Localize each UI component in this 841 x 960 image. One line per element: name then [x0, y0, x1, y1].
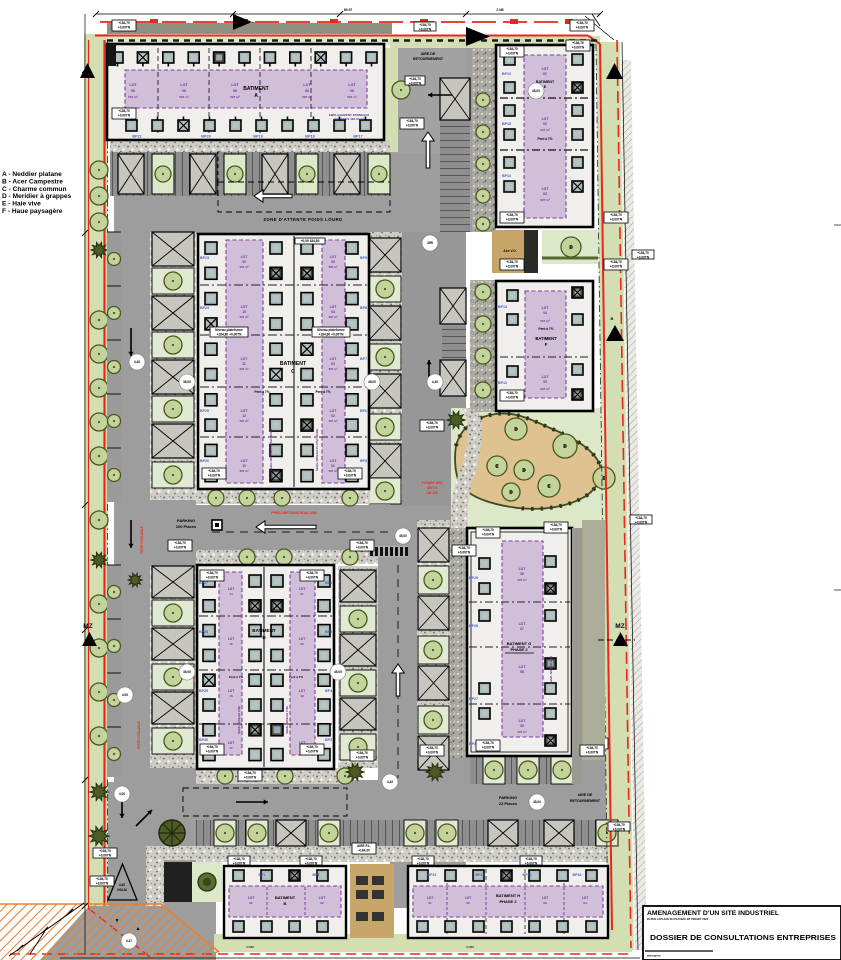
svg-text:BP26: BP26	[200, 459, 209, 463]
svg-text:597 m²: 597 m²	[240, 367, 249, 371]
svg-text:4,40: 4,40	[119, 883, 125, 887]
svg-text:+0,00TN: +0,00TN	[118, 113, 131, 117]
svg-text:+0,00TN: +0,00TN	[206, 749, 219, 753]
svg-text:LOT: LOT	[228, 637, 234, 641]
svg-text:Pent à 7%: Pent à 7%	[254, 390, 269, 394]
svg-text:+0,00TN: +0,00TN	[409, 81, 422, 85]
svg-text:12: 12	[242, 414, 246, 418]
svg-text:03: 03	[543, 901, 547, 905]
svg-text:BP16: BP16	[502, 72, 511, 76]
svg-text:D: D	[514, 427, 518, 433]
svg-text:22 Places: 22 Places	[499, 801, 518, 806]
svg-text:BP25: BP25	[200, 409, 209, 413]
svg-text:+0,00TN: +0,00TN	[99, 853, 112, 857]
svg-text:SEUIL NIVEAU FINI: SEUIL NIVEAU FINI	[549, 656, 553, 684]
svg-text:09: 09	[242, 260, 246, 264]
svg-text:+0,00TN: +0,00TN	[635, 520, 648, 524]
svg-text:597 m²: 597 m²	[329, 265, 338, 269]
svg-text:AIRE DE: AIRE DE	[578, 793, 593, 797]
svg-text:▼: ▼	[115, 918, 120, 924]
svg-text:LOT: LOT	[519, 567, 527, 571]
svg-text:06: 06	[131, 89, 135, 93]
svg-text:+0,00TN: +0,00TN	[233, 861, 246, 865]
svg-text:E - Haie vive: E - Haie vive	[2, 201, 41, 208]
svg-text:02: 02	[543, 122, 547, 126]
svg-text:16: 16	[229, 694, 233, 698]
svg-text:HOLM: HOLM	[117, 888, 127, 892]
svg-text:Pent à 7%: Pent à 7%	[229, 675, 244, 679]
svg-text:B - Acer Campestre: B - Acer Campestre	[2, 178, 63, 185]
svg-text:100 Places: 100 Places	[176, 524, 197, 529]
svg-text:4,00: 4,00	[119, 792, 125, 796]
svg-text:BP6: BP6	[325, 581, 332, 585]
svg-text:4,00: 4,00	[122, 693, 128, 697]
svg-text:09: 09	[520, 724, 524, 728]
svg-text:BP24: BP24	[200, 306, 209, 310]
svg-text:BP28: BP28	[469, 624, 478, 628]
svg-text:PHASE 2: PHASE 2	[510, 647, 528, 652]
svg-text:LOT: LOT	[241, 357, 249, 361]
svg-text:LOT: LOT	[228, 587, 234, 591]
svg-text:BATIMENT G: BATIMENT G	[507, 641, 532, 646]
svg-text:BP33: BP33	[523, 873, 532, 877]
svg-text:SEUIL NIVEAU FINI: SEUIL NIVEAU FINI	[285, 706, 289, 734]
svg-text:+184,80 +0,00TN: +184,80 +0,00TN	[217, 332, 243, 336]
svg-text:D: D	[563, 444, 567, 450]
svg-text:45,00: 45,00	[183, 380, 191, 384]
svg-text:597 m²: 597 m²	[240, 315, 249, 319]
svg-text:BP15: BP15	[502, 122, 511, 126]
svg-text:BP17: BP17	[353, 135, 363, 139]
svg-text:PARKING: PARKING	[177, 518, 195, 523]
svg-text:597 m²: 597 m²	[540, 198, 550, 202]
svg-text:BATIMENT: BATIMENT	[535, 336, 557, 341]
svg-text:+184,80 +0,00TN: +184,80 +0,00TN	[319, 332, 345, 336]
svg-text:+0,00TN: +0,00TN	[550, 527, 563, 531]
svg-text:BP8: BP8	[360, 306, 367, 310]
svg-text:LOT: LOT	[519, 622, 527, 626]
svg-text:LOT: LOT	[299, 587, 305, 591]
svg-text:+0,00TN: +0,00TN	[344, 473, 357, 477]
svg-text:BP31: BP31	[428, 873, 437, 877]
svg-text:04: 04	[543, 311, 547, 315]
svg-text:597 m²: 597 m²	[540, 387, 550, 391]
svg-text:AIRE DE: AIRE DE	[421, 52, 436, 56]
svg-text:BP30: BP30	[199, 738, 208, 742]
svg-text:Pent à 7%: Pent à 7%	[315, 390, 330, 394]
svg-text:+0,00TN: +0,00TN	[417, 861, 430, 865]
svg-text:+0,00TN: +0,00TN	[356, 755, 369, 759]
svg-text:PHASE 2: PHASE 2	[499, 899, 517, 904]
svg-text:45,00: 45,00	[533, 800, 541, 804]
svg-text:+0,00TN: +0,00TN	[306, 749, 319, 753]
svg-text:RETOURNEMENT: RETOURNEMENT	[570, 799, 601, 803]
svg-text:BP29: BP29	[469, 576, 478, 580]
svg-text:11: 11	[242, 362, 246, 366]
svg-text:LOT: LOT	[519, 719, 527, 723]
svg-text:B: B	[611, 316, 614, 321]
svg-text:LOT: LOT	[465, 896, 471, 900]
svg-text:Pent à 7%: Pent à 7%	[538, 327, 553, 331]
svg-text:LOT: LOT	[582, 896, 588, 900]
svg-text:06: 06	[305, 89, 309, 93]
svg-text:05: 05	[543, 380, 547, 384]
svg-text:BP5: BP5	[325, 630, 332, 634]
svg-text:BATIMENT H: BATIMENT H	[496, 893, 520, 898]
svg-text:BP18: BP18	[305, 135, 315, 139]
svg-text:BP23: BP23	[200, 256, 209, 260]
svg-text:69.97: 69.97	[344, 8, 353, 12]
svg-text:BP13: BP13	[498, 305, 507, 309]
svg-text:597 m²: 597 m²	[518, 578, 527, 582]
svg-text:+0,00TN: +0,00TN	[458, 550, 471, 554]
svg-text:LOT: LOT	[228, 689, 234, 693]
svg-text:BP7: BP7	[360, 357, 367, 361]
svg-text:+0,00TN: +0,00TN	[506, 264, 519, 268]
svg-text:SEUIL NIVEAU PLATEFORME: SEUIL NIVEAU PLATEFORME	[269, 429, 273, 471]
svg-text:45,00: 45,00	[334, 670, 342, 674]
svg-text:+0,00TN: +0,00TN	[506, 51, 519, 55]
svg-text:D - Meridier à grappes: D - Meridier à grappes	[2, 193, 72, 200]
svg-text:LOT: LOT	[319, 896, 325, 900]
svg-text:BP1: BP1	[259, 873, 266, 877]
svg-text:LOT: LOT	[299, 637, 305, 641]
svg-text:PISTE CYCLABLE: PISTE CYCLABLE	[140, 526, 144, 553]
svg-text:LOT: LOT	[330, 459, 338, 463]
svg-text:+0,00TN: +0,00TN	[610, 264, 623, 268]
svg-text:597 m²: 597 m²	[329, 469, 338, 473]
svg-text:+0,00 184,80: +0,00 184,80	[301, 239, 320, 243]
svg-text:+0,00TN: +0,00TN	[426, 750, 439, 754]
svg-text:+0,00TN: +0,00TN	[426, 425, 439, 429]
svg-text:07: 07	[520, 627, 524, 631]
svg-text:LOT: LOT	[228, 741, 234, 745]
svg-text:LOT: LOT	[348, 83, 356, 87]
svg-text:ZONE D'ATTENTE POIDS LOURD: ZONE D'ATTENTE POIDS LOURD	[263, 217, 342, 222]
svg-text:Aire V.O.: Aire V.O.	[503, 249, 516, 253]
svg-text:4,40: 4,40	[134, 360, 140, 364]
svg-text:entreprise: entreprise	[647, 954, 661, 958]
svg-text:+0,00TN: +0,00TN	[406, 123, 419, 127]
svg-text:+0,00TN: +0,00TN	[118, 25, 131, 29]
svg-text:Pent à 7%: Pent à 7%	[289, 675, 304, 679]
svg-text:45x7.5: 45x7.5	[427, 486, 437, 490]
svg-text:BP9: BP9	[360, 256, 367, 260]
svg-text:LOT: LOT	[427, 896, 433, 900]
svg-text:BP5: BP5	[360, 459, 367, 463]
svg-text:08: 08	[520, 670, 524, 674]
svg-text:+0,00TN: +0,00TN	[482, 745, 495, 749]
svg-text:01: 01	[428, 901, 432, 905]
svg-text:BP6: BP6	[360, 409, 367, 413]
svg-text:LOT: LOT	[303, 83, 311, 87]
svg-text:+0,00TN: +0,00TN	[174, 545, 187, 549]
svg-text:LOT: LOT	[180, 83, 188, 87]
svg-text:PARKING: PARKING	[499, 795, 517, 800]
svg-text:DOSSIER DE CONSULTATIONS ENTRE: DOSSIER DE CONSULTATIONS ENTREPRISES	[650, 933, 836, 942]
svg-text:LOT: LOT	[542, 306, 550, 310]
svg-text:D: D	[509, 490, 513, 496]
svg-text:PRESCRIPTIONS ROULAGE: PRESCRIPTIONS ROULAGE	[271, 511, 317, 515]
svg-text:01: 01	[249, 901, 253, 905]
svg-text:03: 03	[331, 362, 335, 366]
svg-text:06: 06	[182, 89, 186, 93]
svg-text:597 m²: 597 m²	[329, 315, 338, 319]
svg-text:BP21: BP21	[132, 135, 142, 139]
svg-text:Pent à 7%: Pent à 7%	[537, 137, 552, 141]
svg-text:01: 01	[331, 464, 335, 468]
svg-text:597 m²: 597 m²	[540, 128, 550, 132]
svg-text:BP19: BP19	[253, 135, 263, 139]
svg-text:D: D	[569, 245, 573, 251]
svg-text:+0,00TN: +0,00TN	[96, 881, 109, 885]
svg-text:597 m²: 597 m²	[329, 419, 338, 423]
svg-text:597 m²: 597 m²	[540, 319, 550, 323]
svg-text:D: D	[522, 468, 526, 474]
svg-text:06: 06	[520, 572, 524, 576]
svg-text:LOT: LOT	[542, 117, 550, 121]
svg-text:BP32: BP32	[476, 873, 485, 877]
svg-text:597 m²: 597 m²	[347, 95, 357, 99]
svg-text:A - Neddier platane: A - Neddier platane	[2, 171, 62, 178]
svg-text:03: 03	[543, 192, 547, 196]
svg-text:02: 02	[466, 901, 470, 905]
svg-text:BP3: BP3	[325, 738, 332, 742]
svg-text:19: 19	[300, 694, 304, 698]
svg-text:02: 02	[320, 901, 324, 905]
svg-text:LOT: LOT	[241, 255, 249, 259]
svg-text:SOLAIRES 480,00 m²: SOLAIRES 480,00 m²	[334, 117, 364, 121]
svg-text:BP28: BP28	[199, 630, 208, 634]
svg-text:BATIMENT: BATIMENT	[275, 895, 296, 900]
svg-text:LOT: LOT	[231, 83, 239, 87]
svg-text:BP4: BP4	[325, 689, 332, 693]
svg-text:597 m²: 597 m²	[128, 95, 138, 99]
svg-text:4,47: 4,47	[126, 939, 132, 943]
svg-text:45R: 45R	[427, 241, 434, 245]
svg-text:OM 100: OM 100	[426, 491, 438, 495]
svg-text:45,00: 45,00	[399, 534, 407, 538]
svg-text:597 m²: 597 m²	[240, 265, 249, 269]
svg-text:RETOURNEMENT: RETOURNEMENT	[413, 57, 444, 61]
svg-text:C: C	[291, 369, 295, 375]
svg-text:+0,00TN: +0,00TN	[356, 545, 369, 549]
svg-text:MZ: MZ	[615, 623, 624, 630]
svg-text:BP12: BP12	[498, 381, 507, 385]
svg-text:04: 04	[583, 901, 587, 905]
svg-text:4,40: 4,40	[387, 780, 393, 784]
svg-text:+0,00TN: +0,00TN	[525, 861, 538, 865]
svg-text:BP29: BP29	[199, 689, 208, 693]
svg-text:17: 17	[229, 746, 233, 750]
svg-text:LOT: LOT	[241, 459, 249, 463]
svg-text:LOT: LOT	[129, 83, 137, 87]
svg-text:LOT: LOT	[519, 665, 527, 669]
svg-text:LOT: LOT	[542, 896, 548, 900]
svg-text:LOT: LOT	[299, 689, 305, 693]
svg-text:BP14: BP14	[502, 174, 511, 178]
svg-text:BATIMENT: BATIMENT	[243, 86, 268, 92]
svg-text:LOT: LOT	[542, 375, 550, 379]
svg-text:3 N80: 3 N80	[246, 945, 254, 949]
svg-text:04: 04	[331, 310, 335, 314]
svg-text:45,00: 45,00	[368, 380, 376, 384]
svg-text:SEUIL NIVEAU PLATEFORME: SEUIL NIVEAU PLATEFORME	[315, 429, 319, 471]
svg-text:F: F	[545, 342, 548, 347]
svg-text:MZ: MZ	[83, 623, 92, 630]
svg-text:10: 10	[242, 310, 246, 314]
svg-text:F - Haue paysagère: F - Haue paysagère	[2, 208, 63, 215]
svg-text:20: 20	[300, 642, 304, 646]
svg-text:45,00: 45,00	[183, 670, 191, 674]
svg-text:LOT: LOT	[241, 409, 249, 413]
svg-text:+0,00TN: +0,00TN	[576, 25, 589, 29]
svg-text:45,00: 45,00	[532, 89, 540, 93]
svg-text:Y1 PARC AED: Y1 PARC AED	[421, 481, 443, 485]
svg-text:+0,00TN: +0,00TN	[482, 532, 495, 536]
svg-text:LOT: LOT	[241, 305, 249, 309]
svg-text:13: 13	[242, 464, 246, 468]
svg-text:A: A	[254, 93, 258, 99]
svg-text:BP27: BP27	[469, 697, 478, 701]
svg-text:+0,00TN: +0,00TN	[208, 473, 221, 477]
svg-text:BP34: BP34	[573, 873, 582, 877]
svg-text:+0,00TN: +0,00TN	[610, 217, 623, 221]
svg-text:+0,00TN: +0,00TN	[506, 395, 519, 399]
svg-text:+184,30: +184,30	[358, 848, 370, 852]
svg-text:+0,00TN: +0,00TN	[419, 27, 432, 31]
svg-text:01: 01	[543, 72, 547, 76]
svg-text:C - Charme commun: C - Charme commun	[2, 186, 66, 193]
svg-text:4,40: 4,40	[432, 380, 438, 384]
svg-text:LOT: LOT	[542, 187, 550, 191]
svg-text:06: 06	[350, 89, 354, 93]
svg-text:597 m²: 597 m²	[518, 730, 527, 734]
svg-text:+0,00TN: +0,00TN	[244, 775, 257, 779]
svg-text:+0,00TN: +0,00TN	[506, 217, 519, 221]
svg-text:597 m²: 597 m²	[302, 95, 312, 99]
svg-text:597 m²: 597 m²	[240, 419, 249, 423]
svg-text:21: 21	[300, 592, 304, 596]
svg-text:LOT: LOT	[330, 409, 338, 413]
svg-text:+0,00TN: +0,00TN	[572, 45, 585, 49]
svg-text:LOT: LOT	[330, 357, 338, 361]
svg-text:LOT: LOT	[542, 67, 550, 71]
svg-text:+0,00TN: +0,00TN	[206, 575, 219, 579]
svg-text:+0,00TN: +0,00TN	[613, 827, 626, 831]
svg-text:BATIMENT: BATIMENT	[280, 361, 307, 367]
svg-text:+0,00TN: +0,00TN	[637, 255, 650, 259]
svg-text:14: 14	[229, 592, 233, 596]
svg-text:LOT: LOT	[330, 255, 338, 259]
svg-text:06: 06	[233, 89, 237, 93]
svg-text:3 N80: 3 N80	[466, 945, 474, 949]
svg-text:LOT: LOT	[330, 305, 338, 309]
svg-text:C: C	[495, 464, 499, 470]
svg-text:C: C	[547, 484, 551, 490]
svg-text:LOT: LOT	[248, 896, 254, 900]
svg-text:BP27: BP27	[199, 581, 208, 585]
svg-text:15: 15	[229, 642, 233, 646]
svg-text:02: 02	[331, 414, 335, 418]
svg-text:PISTE CYCLABLE: PISTE CYCLABLE	[137, 721, 141, 748]
svg-text:+0,00TN: +0,00TN	[306, 575, 319, 579]
svg-text:BP20: BP20	[201, 135, 211, 139]
svg-text:20 RUE LAPLACE DU PLATEAU BT P: 20 RUE LAPLACE DU PLATEAU BT PROJET 2023	[647, 917, 709, 921]
svg-text:05: 05	[331, 260, 335, 264]
svg-text:597 m²: 597 m²	[230, 95, 240, 99]
svg-text:BP2: BP2	[313, 873, 320, 877]
svg-text:+0,00TN: +0,00TN	[305, 861, 318, 865]
svg-text:+0,00TN: +0,00TN	[586, 750, 599, 754]
svg-text:BATIMENT: BATIMENT	[252, 628, 276, 633]
svg-text:597 m²: 597 m²	[240, 469, 249, 473]
svg-text:597 m²: 597 m²	[329, 367, 338, 371]
svg-text:AMENAGEMENT D'UN SITE INDUSTRI: AMENAGEMENT D'UN SITE INDUSTRIEL	[647, 911, 779, 917]
svg-text:B: B	[284, 901, 287, 906]
svg-text:SEUIL NIVEAU FINI: SEUIL NIVEAU FINI	[237, 706, 241, 734]
svg-text:▲: ▲	[136, 926, 141, 932]
svg-text:2 N8: 2 N8	[496, 8, 503, 12]
svg-text:597 m²: 597 m²	[179, 95, 189, 99]
